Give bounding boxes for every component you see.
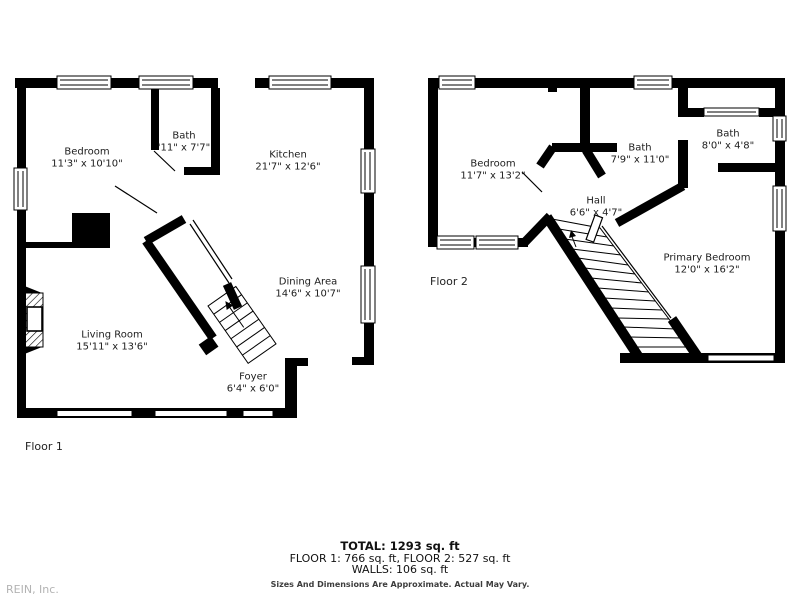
- room-name: Dining Area: [275, 277, 340, 289]
- room-dims: '11" x 7'7": [158, 142, 210, 154]
- floor1-label: Floor 1: [25, 440, 63, 453]
- floor2-plan: [428, 76, 786, 363]
- room-dims: 12'0" x 16'2": [663, 264, 750, 276]
- room-label-bath2-f2: Bath 8'0" x 4'8": [702, 129, 754, 152]
- floor-breakdown: FLOOR 1: 766 sq. ft, FLOOR 2: 527 sq. ft: [0, 553, 800, 564]
- walls-area: WALLS: 106 sq. ft: [0, 564, 800, 575]
- room-label-foyer: Foyer 6'4" x 6'0": [227, 372, 279, 395]
- room-name: Living Room: [76, 330, 148, 342]
- room-name: Hall: [570, 196, 622, 208]
- floorplan-drawing: [0, 0, 800, 600]
- room-dims: 14'6" x 10'7": [275, 288, 340, 300]
- floor2-walls: [428, 78, 785, 363]
- room-name: Bath: [611, 143, 670, 155]
- room-dims: 11'3" x 10'10": [51, 158, 123, 170]
- room-label-bath-f1: Bath '11" x 7'7": [158, 131, 210, 154]
- room-name: Foyer: [227, 372, 279, 384]
- room-name: Bath: [158, 131, 210, 143]
- room-dims: 21'7" x 12'6": [255, 161, 320, 173]
- room-name: Bath: [702, 129, 754, 141]
- room-dims: 7'9" x 11'0": [611, 154, 670, 166]
- floor2-stairs: [547, 215, 700, 360]
- floor1-plan: [14, 76, 375, 418]
- floor1-doors: [115, 151, 175, 213]
- room-label-bedroom-f2: Bedroom 11'7" x 13'2": [460, 159, 525, 182]
- room-dims: 11'7" x 13'2": [460, 170, 525, 182]
- floor1-stairs: [146, 219, 276, 363]
- room-label-kitchen: Kitchen 21'7" x 12'6": [255, 150, 320, 173]
- rein-watermark: REIN, Inc.: [6, 583, 59, 596]
- room-dims: 6'4" x 6'0": [227, 383, 279, 395]
- total-area: TOTAL: 1293 sq. ft: [0, 541, 800, 553]
- room-label-hall: Hall 6'6" x 4'7": [570, 196, 622, 219]
- closet-box: [72, 213, 110, 248]
- floorplan-page: Bedroom 11'3" x 10'10" Bath '11" x 7'7" …: [0, 0, 800, 600]
- area-summary: TOTAL: 1293 sq. ft FLOOR 1: 766 sq. ft, …: [0, 541, 800, 589]
- fireplace: [17, 283, 43, 357]
- room-label-dining-area: Dining Area 14'6" x 10'7": [275, 277, 340, 300]
- room-name: Primary Bedroom: [663, 253, 750, 265]
- room-dims: 6'6" x 4'7": [570, 207, 622, 219]
- room-label-primary-bedroom: Primary Bedroom 12'0" x 16'2": [663, 253, 750, 276]
- room-name: Bedroom: [51, 147, 123, 159]
- floor2-label: Floor 2: [430, 275, 468, 288]
- room-label-bath-f2: Bath 7'9" x 11'0": [611, 143, 670, 166]
- bath-door-swing: [154, 151, 175, 171]
- bath-counter: [704, 108, 759, 116]
- room-name: Bedroom: [460, 159, 525, 171]
- floor1-walls: [15, 78, 374, 418]
- bedroom-door-swing: [115, 186, 157, 213]
- room-label-bedroom-f1: Bedroom 11'3" x 10'10": [51, 147, 123, 170]
- room-dims: 15'11" x 13'6": [76, 341, 148, 353]
- room-name: Kitchen: [255, 150, 320, 162]
- room-dims: 8'0" x 4'8": [702, 140, 754, 152]
- room-label-living-room: Living Room 15'11" x 13'6": [76, 330, 148, 353]
- disclaimer: Sizes And Dimensions Are Approximate. Ac…: [0, 580, 800, 589]
